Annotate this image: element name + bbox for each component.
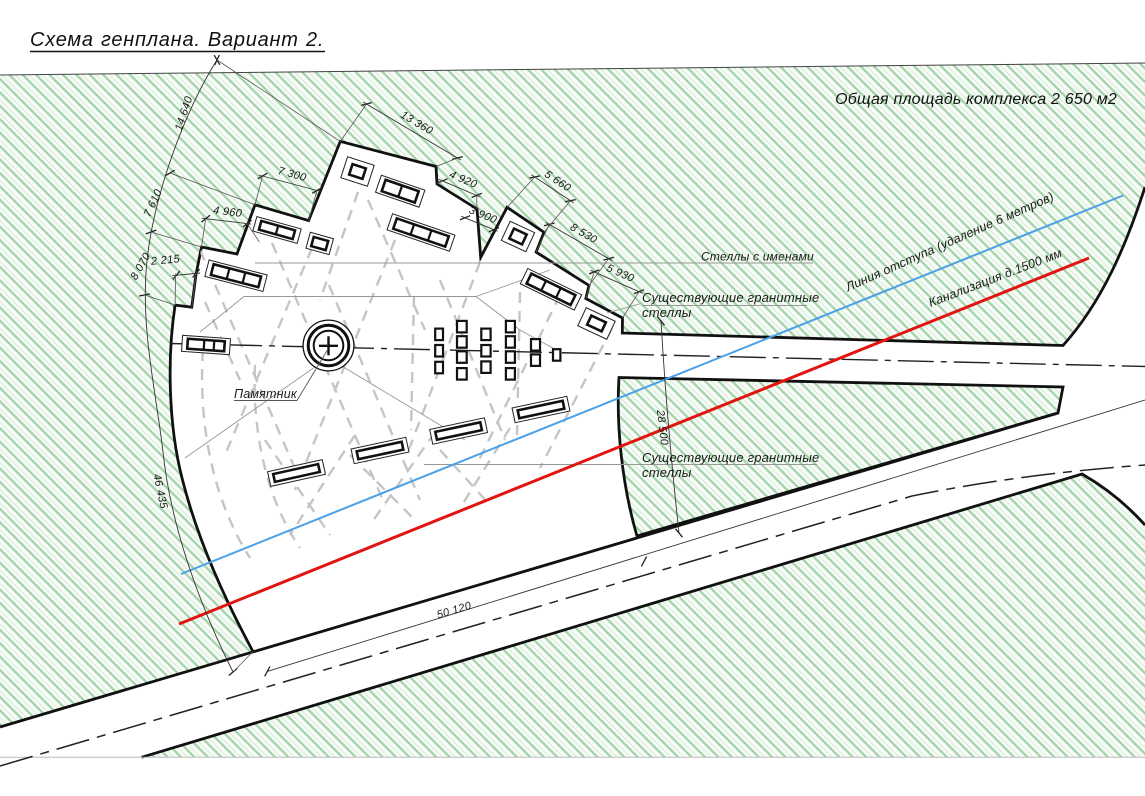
svg-text:Существующие гранитные: Существующие гранитные bbox=[642, 290, 819, 305]
svg-text:стеллы: стеллы bbox=[642, 305, 692, 320]
svg-text:Схема генплана. Вариант 2.: Схема генплана. Вариант 2. bbox=[30, 29, 324, 51]
svg-text:Общая площадь комплекса 2 650: Общая площадь комплекса 2 650 м2 bbox=[835, 91, 1117, 108]
svg-text:стеллы: стеллы bbox=[642, 465, 692, 480]
svg-text:Памятник: Памятник bbox=[234, 387, 298, 401]
svg-text:Стеллы с именами: Стеллы с именами bbox=[701, 250, 814, 264]
svg-text:Существующие гранитные: Существующие гранитные bbox=[642, 450, 819, 465]
